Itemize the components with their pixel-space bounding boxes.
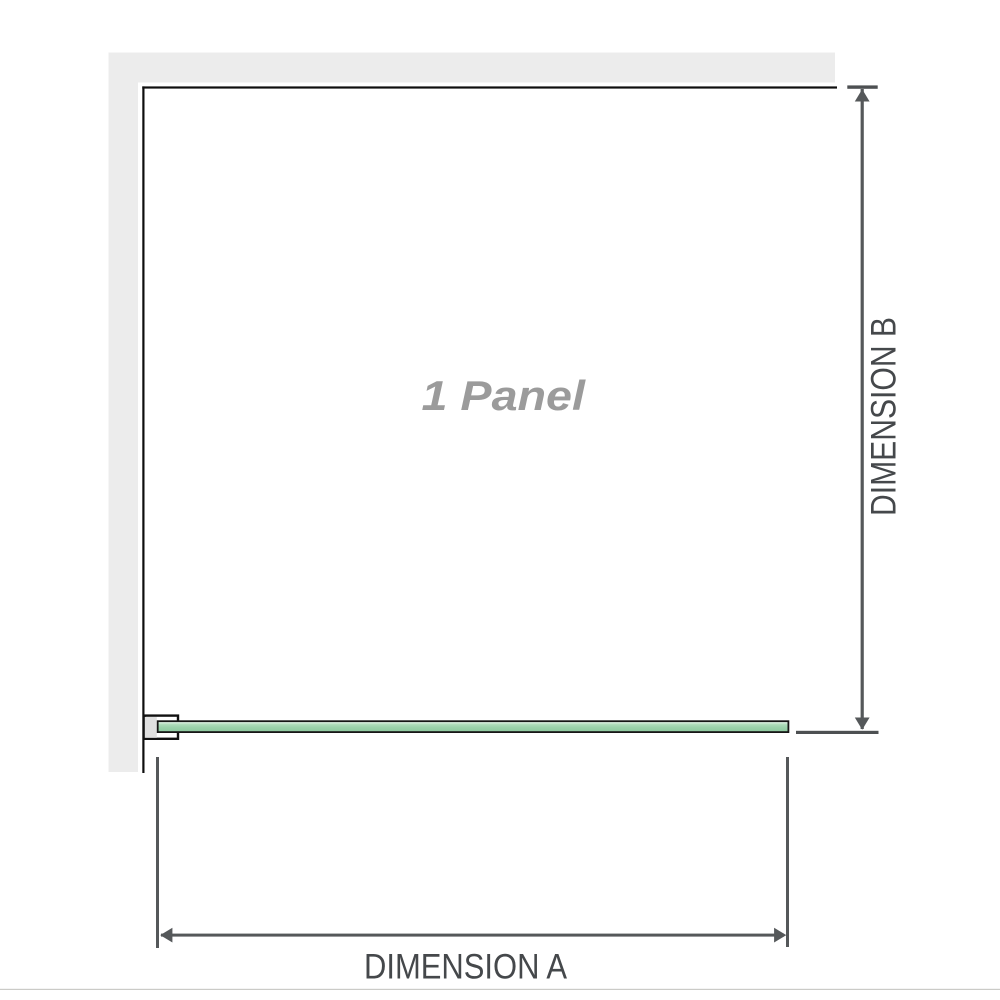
svg-text:DIMENSION A: DIMENSION A bbox=[364, 948, 568, 987]
svg-text:DIMENSION B: DIMENSION B bbox=[865, 317, 904, 516]
svg-text:1 Panel: 1 Panel bbox=[422, 372, 587, 419]
